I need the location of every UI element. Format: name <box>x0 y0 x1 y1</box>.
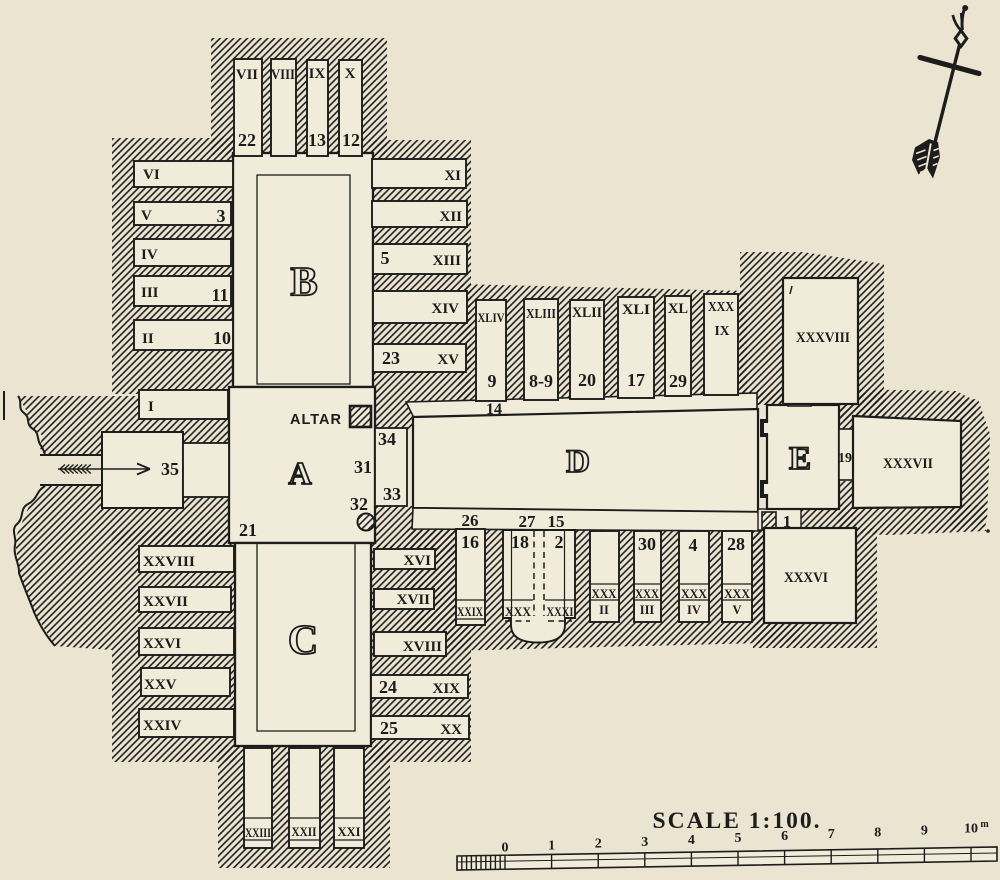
svg-text:11: 11 <box>211 285 228 305</box>
svg-text:16: 16 <box>461 532 479 552</box>
svg-text:IX: IX <box>714 323 729 338</box>
svg-text:21: 21 <box>239 520 257 540</box>
svg-text:22: 22 <box>238 130 256 150</box>
svg-text:XXV: XXV <box>144 677 177 693</box>
svg-text:XI: XI <box>444 168 461 184</box>
svg-text:XXIV: XXIV <box>143 718 182 734</box>
svg-text:7: 7 <box>828 827 835 842</box>
svg-text:2: 2 <box>555 532 564 552</box>
svg-text:B: B <box>290 258 317 304</box>
svg-text:32: 32 <box>350 494 368 514</box>
svg-text:XIII: XIII <box>433 253 462 269</box>
svg-text:10: 10 <box>213 328 231 348</box>
svg-text:XLIII: XLIII <box>526 307 556 322</box>
svg-text:XV: XV <box>437 352 459 368</box>
svg-text:XVII: XVII <box>397 592 431 608</box>
svg-text:VI: VI <box>143 167 160 183</box>
svg-text:3: 3 <box>641 835 648 850</box>
svg-text:III: III <box>640 603 655 617</box>
svg-text:XIV: XIV <box>431 301 459 317</box>
svg-text:15: 15 <box>548 512 565 531</box>
svg-text:5: 5 <box>381 248 390 268</box>
svg-text:XXVI: XXVI <box>143 636 181 652</box>
svg-text:XLIV: XLIV <box>478 310 506 325</box>
svg-text:m: m <box>980 819 989 830</box>
svg-text:XL: XL <box>668 301 688 317</box>
svg-text:20: 20 <box>578 370 596 390</box>
svg-text:IV: IV <box>687 603 701 617</box>
svg-text:D: D <box>566 444 590 480</box>
svg-text:19: 19 <box>838 451 852 466</box>
svg-text:XVIII: XVIII <box>403 639 442 655</box>
svg-text:XXXVI: XXXVI <box>784 570 828 586</box>
svg-text:X: X <box>345 66 356 82</box>
svg-text:4: 4 <box>689 535 698 555</box>
svg-text:XXXVII: XXXVII <box>883 456 933 472</box>
svg-text:30: 30 <box>638 534 656 554</box>
svg-text:23: 23 <box>382 348 400 368</box>
svg-text:3: 3 <box>217 206 226 226</box>
svg-text:XXX: XXX <box>505 605 531 619</box>
svg-text:XXII: XXII <box>292 825 317 839</box>
svg-text:III: III <box>141 285 159 301</box>
svg-text:II: II <box>142 331 154 347</box>
svg-text:1: 1 <box>783 512 792 531</box>
svg-text:18: 18 <box>511 532 529 552</box>
svg-text:XXX: XXX <box>681 587 707 601</box>
svg-text:8-9: 8-9 <box>529 371 553 391</box>
svg-text:V: V <box>141 208 152 224</box>
svg-text:28: 28 <box>727 534 745 554</box>
svg-text:27: 27 <box>519 512 537 531</box>
svg-text:13: 13 <box>308 130 326 150</box>
svg-text:34: 34 <box>378 429 396 449</box>
svg-text:I: I <box>148 399 154 415</box>
svg-text:XVI: XVI <box>403 553 431 569</box>
svg-text:A: A <box>288 455 311 491</box>
svg-text:29: 29 <box>669 371 687 391</box>
svg-text:VIII: VIII <box>271 67 295 83</box>
svg-text:IV: IV <box>141 247 158 263</box>
svg-text:XXXI: XXXI <box>547 605 574 619</box>
svg-text:10: 10 <box>964 822 978 837</box>
svg-text:XX: XX <box>440 722 462 738</box>
svg-text:VII: VII <box>236 67 258 83</box>
svg-text:31: 31 <box>354 457 372 477</box>
svg-text:XLI: XLI <box>622 302 650 318</box>
svg-text:XXIX: XXIX <box>457 605 483 619</box>
svg-text:XXXVIII: XXXVIII <box>796 330 850 346</box>
svg-text:35: 35 <box>161 459 179 479</box>
svg-text:XIX: XIX <box>432 681 460 697</box>
svg-text:8: 8 <box>874 825 881 840</box>
svg-text:V: V <box>732 603 741 617</box>
svg-text:XII: XII <box>439 209 462 225</box>
svg-text:1: 1 <box>548 839 555 854</box>
svg-text:XLII: XLII <box>572 305 602 321</box>
svg-text:9: 9 <box>488 371 497 391</box>
svg-text:XXX: XXX <box>635 587 659 601</box>
svg-text:14: 14 <box>486 401 502 418</box>
svg-text:XXI: XXI <box>338 825 361 839</box>
svg-text:17: 17 <box>627 370 645 390</box>
svg-text:XXX: XXX <box>708 299 734 314</box>
svg-text:24: 24 <box>379 677 397 697</box>
svg-text:2: 2 <box>595 837 602 852</box>
svg-text:12: 12 <box>342 130 360 150</box>
svg-text:9: 9 <box>921 823 928 838</box>
svg-text:XXVII: XXVII <box>143 594 188 610</box>
svg-text:XXVIII: XXVIII <box>143 554 195 570</box>
svg-text:C: C <box>288 618 318 664</box>
svg-text:IX: IX <box>309 66 326 82</box>
svg-text:XXIII: XXIII <box>245 826 271 840</box>
svg-text:33: 33 <box>383 484 401 504</box>
svg-text:SCALE 1:100.: SCALE 1:100. <box>653 808 822 834</box>
svg-text:E: E <box>789 441 811 477</box>
svg-text:XXX: XXX <box>724 587 750 601</box>
svg-text:II: II <box>599 603 609 617</box>
svg-text:XXX: XXX <box>592 587 617 601</box>
svg-text:ALTAR: ALTAR <box>290 412 342 428</box>
svg-text:25: 25 <box>380 718 398 738</box>
svg-text:0: 0 <box>502 841 509 856</box>
svg-text:4: 4 <box>688 833 695 848</box>
svg-text:26: 26 <box>462 511 479 530</box>
